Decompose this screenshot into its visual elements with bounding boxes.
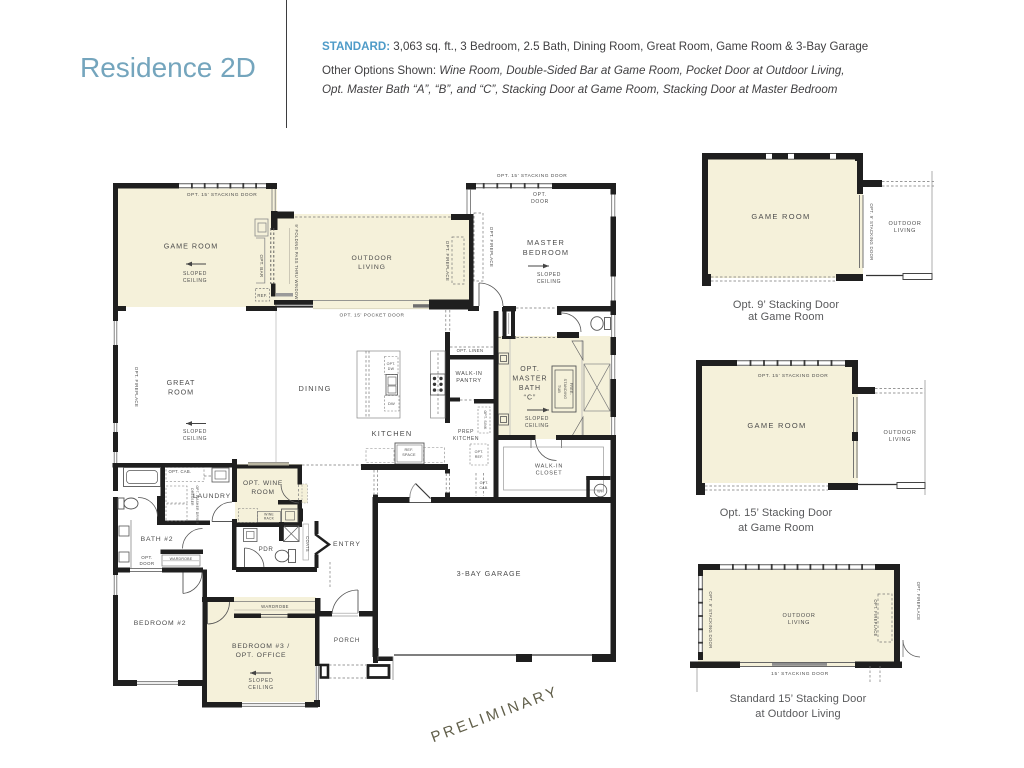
svg-text:CEILING: CEILING (183, 436, 207, 442)
svg-text:OPT. LINEN: OPT. LINEN (457, 348, 484, 353)
svg-text:3-BAY GARAGE: 3-BAY GARAGE (457, 569, 522, 578)
svg-text:OUTDOOR: OUTDOOR (888, 221, 921, 227)
svg-text:OPT.: OPT. (480, 481, 489, 485)
svg-text:OPT.: OPT. (141, 555, 153, 560)
svg-text:MASTER: MASTER (512, 376, 547, 383)
svg-text:LIVING: LIVING (894, 228, 916, 234)
svg-text:BEDROOM #3 /: BEDROOM #3 / (232, 643, 290, 650)
svg-text:OUTDOOR: OUTDOOR (351, 255, 392, 262)
svg-text:WALK-IN: WALK-IN (535, 464, 563, 470)
svg-text:OPT. 9’ STACKING DOOR: OPT. 9’ STACKING DOOR (708, 591, 713, 648)
svg-text:PORCH: PORCH (334, 637, 360, 644)
svg-text:COATS: COATS (305, 536, 310, 552)
svg-text:SLOPED: SLOPED (183, 271, 207, 277)
svg-text:STANDING: STANDING (563, 379, 567, 400)
svg-text:DOOR: DOOR (139, 561, 154, 566)
svg-text:OPT. FIREPLACE: OPT. FIREPLACE (916, 582, 921, 621)
svg-text:SLOPED: SLOPED (248, 678, 273, 684)
svg-text:KITCHEN: KITCHEN (453, 436, 479, 442)
svg-text:OPT.: OPT. (475, 450, 484, 454)
svg-text:Standard 15’ Stacking Door: Standard 15’ Stacking Door (730, 693, 867, 705)
svg-text:CLOSET: CLOSET (536, 471, 563, 477)
svg-text:OPT. BAR: OPT. BAR (259, 255, 264, 278)
svg-text:SPACE: SPACE (402, 453, 416, 457)
svg-text:FREE-: FREE- (569, 383, 573, 396)
svg-text:CEILING: CEILING (183, 278, 207, 284)
svg-text:WARDROBE: WARDROBE (261, 604, 289, 609)
svg-text:OPT. FIREPLACE: OPT. FIREPLACE (489, 227, 494, 267)
svg-text:PRELIMINARY: PRELIMINARY (429, 683, 562, 746)
svg-text:PREP: PREP (458, 429, 474, 435)
svg-text:OPT. FIREPLACE: OPT. FIREPLACE (445, 241, 450, 281)
svg-text:ENTRY: ENTRY (333, 541, 361, 548)
svg-text:GAME ROOM: GAME ROOM (751, 212, 810, 221)
svg-text:at Outdoor Living: at Outdoor Living (755, 708, 840, 720)
svg-text:GAME ROOM: GAME ROOM (164, 242, 219, 251)
svg-text:WARDROBE: WARDROBE (170, 557, 193, 561)
svg-text:BATH #2: BATH #2 (141, 536, 174, 543)
svg-text:at Game Room: at Game Room (748, 311, 824, 323)
svg-text:GAME ROOM: GAME ROOM (747, 421, 806, 430)
svg-text:MASTER: MASTER (527, 238, 565, 247)
svg-text:BEDROOM #2: BEDROOM #2 (134, 620, 187, 627)
svg-text:TUB: TUB (557, 385, 561, 393)
svg-text:WALK-IN: WALK-IN (456, 371, 483, 377)
svg-text:9’ FOLDING PASS THRU WINDOW: 9’ FOLDING PASS THRU WINDOW (294, 224, 299, 299)
svg-text:REF.: REF. (475, 455, 484, 459)
svg-text:DOOR: DOOR (531, 199, 549, 205)
svg-text:OPT. SINK: OPT. SINK (483, 410, 487, 430)
svg-text:OPT. 9’ STACKING DOOR: OPT. 9’ STACKING DOOR (869, 203, 874, 260)
svg-text:LIVING: LIVING (358, 264, 386, 271)
svg-text:DW: DW (388, 367, 395, 371)
svg-text:OPT.: OPT. (387, 362, 396, 366)
svg-text:OPT. WINE: OPT. WINE (243, 480, 283, 487)
svg-text:WH: WH (597, 490, 604, 494)
svg-text:DRESSER: DRESSER (190, 488, 194, 506)
svg-text:OPT. 15’ STACKING DOOR: OPT. 15’ STACKING DOOR (187, 192, 257, 198)
svg-text:CAB.: CAB. (479, 486, 488, 490)
svg-text:KITCHEN: KITCHEN (372, 429, 413, 438)
svg-text:CEILING: CEILING (525, 423, 549, 429)
svg-text:BEDROOM: BEDROOM (523, 248, 570, 257)
svg-text:OPT. FIREPLACE: OPT. FIREPLACE (873, 599, 878, 636)
svg-text:BATH: BATH (519, 385, 541, 392)
svg-text:REF.: REF. (404, 448, 413, 452)
svg-text:OPT. 15’ STACKING DOOR: OPT. 15’ STACKING DOOR (758, 373, 828, 379)
svg-text:CEILING: CEILING (537, 279, 561, 285)
svg-text:DINING: DINING (298, 384, 331, 393)
svg-text:OPT. OFFICE: OPT. OFFICE (236, 652, 287, 659)
svg-text:OPT. 15’ POCKET DOOR: OPT. 15’ POCKET DOOR (340, 313, 405, 319)
svg-text:PDR: PDR (259, 546, 274, 553)
svg-text:OPT.: OPT. (520, 366, 540, 373)
svg-text:SLOPED: SLOPED (525, 416, 549, 422)
svg-text:SLOPED: SLOPED (537, 272, 561, 278)
svg-text:15’ STACKING DOOR: 15’ STACKING DOOR (771, 671, 829, 677)
svg-text:OPT.: OPT. (533, 192, 547, 198)
svg-text:PANTRY: PANTRY (456, 378, 481, 384)
svg-text:OUTDOOR: OUTDOOR (883, 430, 916, 436)
svg-text:OUTDOOR: OUTDOOR (782, 613, 815, 619)
svg-text:GREAT: GREAT (167, 378, 196, 387)
svg-text:OPT. 15’ STACKING DOOR: OPT. 15’ STACKING DOOR (497, 173, 567, 179)
svg-text:“C”: “C” (524, 395, 537, 402)
svg-text:at Game Room: at Game Room (738, 522, 814, 534)
svg-text:DW: DW (388, 401, 395, 406)
svg-text:Opt. 15’ Stacking Door: Opt. 15’ Stacking Door (720, 507, 833, 519)
svg-text:Opt. 9’ Stacking Door: Opt. 9’ Stacking Door (733, 299, 839, 311)
svg-text:OPT. FIREPLACE: OPT. FIREPLACE (134, 367, 139, 407)
svg-text:LIVING: LIVING (889, 437, 911, 443)
svg-text:SLOPED: SLOPED (183, 429, 207, 435)
svg-text:ROOM: ROOM (251, 489, 274, 496)
svg-text:CEILING: CEILING (248, 685, 274, 691)
svg-text:LIVING: LIVING (788, 620, 810, 626)
svg-text:OPT. CAB.: OPT. CAB. (169, 469, 192, 474)
svg-text:RACK: RACK (264, 517, 275, 521)
svg-text:ROOM: ROOM (168, 388, 194, 397)
svg-text:REF.: REF. (257, 293, 267, 298)
svg-text:OPT. WASHER DRYER: OPT. WASHER DRYER (195, 486, 199, 525)
